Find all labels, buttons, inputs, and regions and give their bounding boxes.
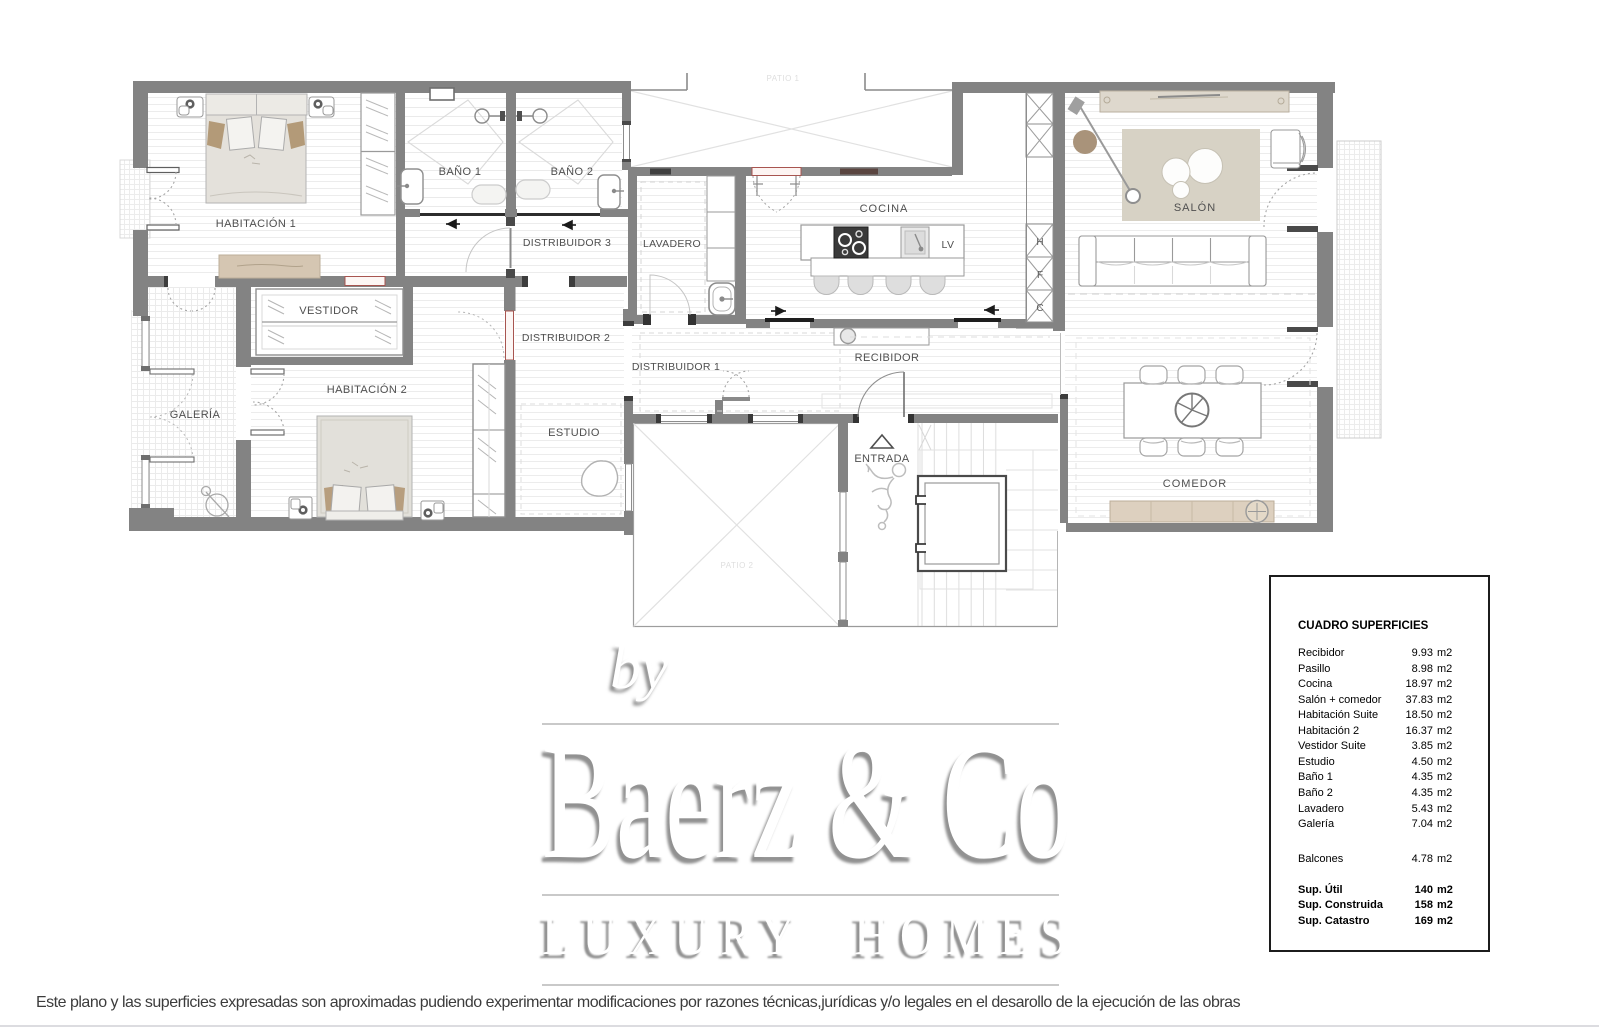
svg-text:HABITACIÓN 1: HABITACIÓN 1: [216, 217, 296, 230]
svg-text:RECIBIDOR: RECIBIDOR: [855, 352, 920, 364]
svg-text:H: H: [1036, 237, 1043, 248]
svg-text:DISTRIBUIDOR 3: DISTRIBUIDOR 3: [523, 237, 611, 249]
svg-text:BAÑO 2: BAÑO 2: [551, 165, 594, 178]
svg-text:PATIO 1: PATIO 1: [767, 74, 800, 83]
svg-text:VESTIDOR: VESTIDOR: [299, 305, 358, 317]
svg-text:ENTRADA: ENTRADA: [854, 453, 910, 465]
svg-text:BAÑO 1: BAÑO 1: [439, 165, 482, 178]
svg-text:GALERÍA: GALERÍA: [170, 408, 221, 421]
svg-text:COMEDOR: COMEDOR: [1163, 478, 1227, 490]
svg-text:ESTUDIO: ESTUDIO: [548, 427, 600, 439]
svg-text:PATIO 2: PATIO 2: [721, 561, 754, 570]
svg-text:LAVADERO: LAVADERO: [643, 238, 701, 250]
svg-text:DISTRIBUIDOR 2: DISTRIBUIDOR 2: [522, 332, 610, 344]
svg-text:SALÓN: SALÓN: [1174, 201, 1216, 214]
svg-text:C: C: [1036, 303, 1043, 314]
svg-text:F: F: [1037, 270, 1043, 281]
svg-text:HABITACIÓN 2: HABITACIÓN 2: [327, 383, 407, 396]
svg-text:DISTRIBUIDOR 1: DISTRIBUIDOR 1: [632, 361, 720, 373]
svg-text:COCINA: COCINA: [860, 203, 909, 215]
svg-text:LV: LV: [941, 239, 954, 251]
